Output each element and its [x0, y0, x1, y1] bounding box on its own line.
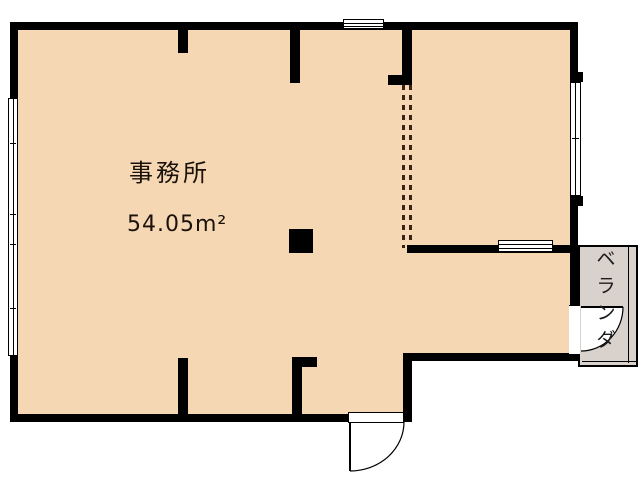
entrance-door-arc — [350, 422, 404, 471]
balcony-label-char: ダ — [596, 331, 615, 350]
room-name-label: 事務所 — [129, 153, 210, 188]
window-top-pane-line — [344, 26, 383, 27]
balcony-label-char: ラ — [596, 277, 615, 296]
balcony-label-char: ン — [596, 304, 615, 323]
right-window-jamb-top — [570, 72, 583, 82]
floor-area-bottom — [14, 357, 407, 414]
wall-top — [10, 22, 578, 30]
window-inner-pane-line — [499, 244, 552, 245]
balcony-label: ベ ラ ン ダ — [592, 250, 620, 350]
dashed-partition-line-right — [409, 85, 412, 248]
balcony-label-char: ベ — [596, 250, 615, 269]
wall-stub-top-1 — [178, 30, 188, 53]
window-left — [8, 98, 18, 356]
window-left-sash-tick — [10, 143, 16, 144]
window-right — [570, 82, 581, 196]
window-left-pane-line — [13, 99, 14, 355]
window-left-sash-tick — [10, 214, 16, 215]
window-top-pane-line — [344, 23, 383, 24]
window-inner-room — [498, 240, 553, 252]
room-area-label: 54.05m² — [127, 212, 227, 237]
window-right-sash-tick — [572, 138, 579, 139]
right-window-jamb-bottom — [570, 196, 583, 206]
pillar — [289, 229, 313, 253]
floorplan-canvas: ベ ラ ン ダ 事務所 54.05m² — [0, 0, 640, 480]
balcony-door-opening — [569, 305, 580, 355]
wall-stub-top-3-foot — [388, 75, 412, 85]
wall-stub-bottom-2-arm — [292, 357, 317, 367]
entrance-door-opening — [348, 412, 404, 423]
dashed-partition — [402, 85, 412, 248]
window-right-pane-line — [575, 83, 576, 195]
balcony-railing-line-right — [628, 247, 629, 363]
dashed-partition-line-left — [402, 85, 405, 248]
balcony-railing-line-bottom — [582, 361, 636, 362]
window-top — [343, 19, 384, 29]
window-left-sash-tick — [10, 308, 16, 309]
wall-stub-top-2 — [290, 30, 300, 83]
wall-stub-bottom-1 — [178, 358, 188, 414]
wall-step-vertical — [403, 353, 412, 422]
window-inner-pane-line — [499, 248, 552, 249]
window-left-sash-tick — [10, 244, 16, 245]
wall-step-horizontal — [403, 353, 578, 361]
